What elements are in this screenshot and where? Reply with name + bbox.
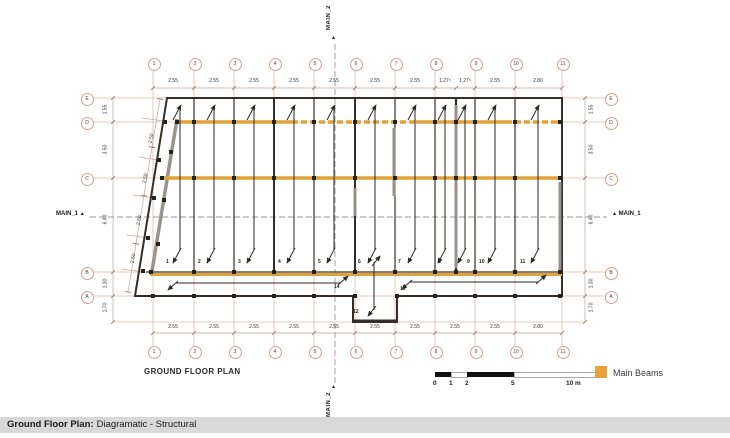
grid-bubble: 6 [350, 346, 363, 359]
columns [141, 120, 562, 298]
legend-main-beams-label: Main Beams [613, 369, 663, 378]
slab-number: 3 [238, 260, 241, 265]
slab-number: 9 [467, 260, 470, 265]
grid-bubble: 6 [350, 58, 363, 71]
slab-number: 11 [520, 260, 525, 265]
dimension-label: 2.55 [403, 79, 427, 84]
slab-number: 6 [358, 260, 361, 265]
dimension-label: 2.55 [363, 325, 387, 330]
dimension-label: 2.55 [282, 79, 306, 84]
dimension-label: 1.70 [590, 298, 595, 318]
dimension-label: 3.50 [590, 140, 595, 160]
grid-bubble: 5 [309, 346, 322, 359]
grid-bubble: 10 [510, 58, 523, 71]
dimension-label: 2.80 [526, 79, 550, 84]
grid-bubble: 10 [510, 346, 523, 359]
walls [135, 98, 562, 322]
dimension-label: 2.55 [483, 79, 507, 84]
dimension-label: 2.55 [483, 325, 507, 330]
section-marker-main2-top: MAIN_2 [326, 5, 332, 30]
dimension-label: 1.55 [590, 100, 595, 120]
grid-bubble: C [81, 173, 94, 186]
grid-bubble: 8 [430, 346, 443, 359]
scale-label: 5 [511, 381, 515, 388]
dimension-label: 2.55 [403, 325, 427, 330]
dimension-label: 2.55 [242, 79, 266, 84]
grid-bubble: 11 [557, 58, 570, 71]
span-arrows [168, 105, 546, 316]
section-triangle-icon: ▲ [331, 385, 336, 390]
dimension-label: 2.55 [161, 79, 185, 84]
grid-bubble: 11 [557, 346, 570, 359]
grid-bubble: 2 [189, 58, 202, 71]
scale-label: 0 [433, 381, 437, 388]
slab-number: 8 [438, 260, 441, 265]
slab-number: 10 [479, 260, 485, 265]
slab-number: 7 [398, 260, 401, 265]
grid-bubble: 1 [148, 346, 161, 359]
scale-bar-segment [451, 372, 468, 378]
section-marker-main1-left: MAIN_1 ▲ [56, 211, 85, 217]
status-bar-subtitle: Diagramatic - Structural [97, 419, 197, 430]
grid-bubble: 8 [430, 58, 443, 71]
section-triangle-icon: ▲ [80, 211, 85, 217]
dimension-label: 1.30 [104, 274, 109, 294]
grid-bubble: A [605, 291, 618, 304]
dimension-label: 2.55 [443, 325, 467, 330]
grid-bubble: B [81, 267, 94, 280]
dimension-label: 2.55 [322, 325, 346, 330]
grid-bubble: 4 [269, 58, 282, 71]
grid-bubble: 2 [189, 346, 202, 359]
dimension-label: 1.55 [104, 100, 109, 120]
dimension-label: 2.55 [202, 79, 226, 84]
scale-label: 2 [465, 381, 469, 388]
dimension-label: 3.50 [104, 140, 109, 160]
scale-bar-segment [435, 372, 451, 377]
slab-number: 12 [353, 310, 359, 315]
section-lines [90, 44, 607, 383]
grid-bubble: 3 [229, 346, 242, 359]
section-marker-main1-right: ▲ MAIN_1 [612, 211, 641, 217]
structural-plan-sheet: 1 2 3 4 5 6 7 8 9 10 11 1 2 3 4 5 6 7 8 … [0, 0, 730, 438]
grid-bubble: 7 [390, 346, 403, 359]
status-bar-title: Ground Floor Plan: [7, 419, 94, 430]
grid-bubble: A [81, 291, 94, 304]
drawing-title: GROUND FLOOR PLAN [144, 367, 241, 376]
scale-bar-segment [514, 372, 596, 378]
dimension-label: 2.80 [526, 325, 550, 330]
slab-number: 4 [278, 260, 281, 265]
dimension-label: 2.55 [282, 325, 306, 330]
section-marker-main2-bottom: MAIN_2 [326, 392, 332, 417]
grid-bubble: 3 [229, 58, 242, 71]
dimension-label: 1.27⁵ [453, 79, 477, 84]
grid-bubble: 7 [390, 58, 403, 71]
legend-main-beams-swatch [595, 366, 607, 378]
dimension-label: 2.55 [161, 325, 185, 330]
section-triangle-icon: ▲ [331, 36, 336, 41]
dimension-label: 2.55 [242, 325, 266, 330]
section-triangle-icon: ▲ [612, 211, 617, 217]
slab-number: 13 [400, 287, 406, 292]
grid-bubble: 1 [148, 58, 161, 71]
grid-bubble: B [605, 267, 618, 280]
grid-bubble: E [605, 93, 618, 106]
grid-bubble: D [605, 117, 618, 130]
grid-bubble: C [605, 173, 618, 186]
grid-bubble: D [81, 117, 94, 130]
grid-bubble: 9 [470, 346, 483, 359]
grid-bubble: 9 [470, 58, 483, 71]
status-bar: Ground Floor Plan:Diagramatic - Structur… [0, 417, 730, 433]
dimension-label: 1.70 [104, 298, 109, 318]
slab-number: 14 [334, 285, 340, 290]
scale-bar-segment [467, 372, 514, 377]
dimension-label: 6.40 [590, 210, 595, 230]
grid-bubble: 4 [269, 346, 282, 359]
scale-label: 1 [449, 381, 453, 388]
dimension-label: 1.30 [590, 274, 595, 294]
grid-bubble: 5 [309, 58, 322, 71]
grid-bubble: E [81, 93, 94, 106]
dimension-label: 2.55 [363, 79, 387, 84]
slab-number: 5 [318, 260, 321, 265]
dimension-label: 6.40 [104, 210, 109, 230]
dimension-label: 2.55 [322, 79, 346, 84]
slab-number: 2 [198, 260, 201, 265]
scale-label: 10 m [566, 381, 581, 388]
dimension-label: 2.55 [202, 325, 226, 330]
slab-number: 1 [166, 260, 169, 265]
